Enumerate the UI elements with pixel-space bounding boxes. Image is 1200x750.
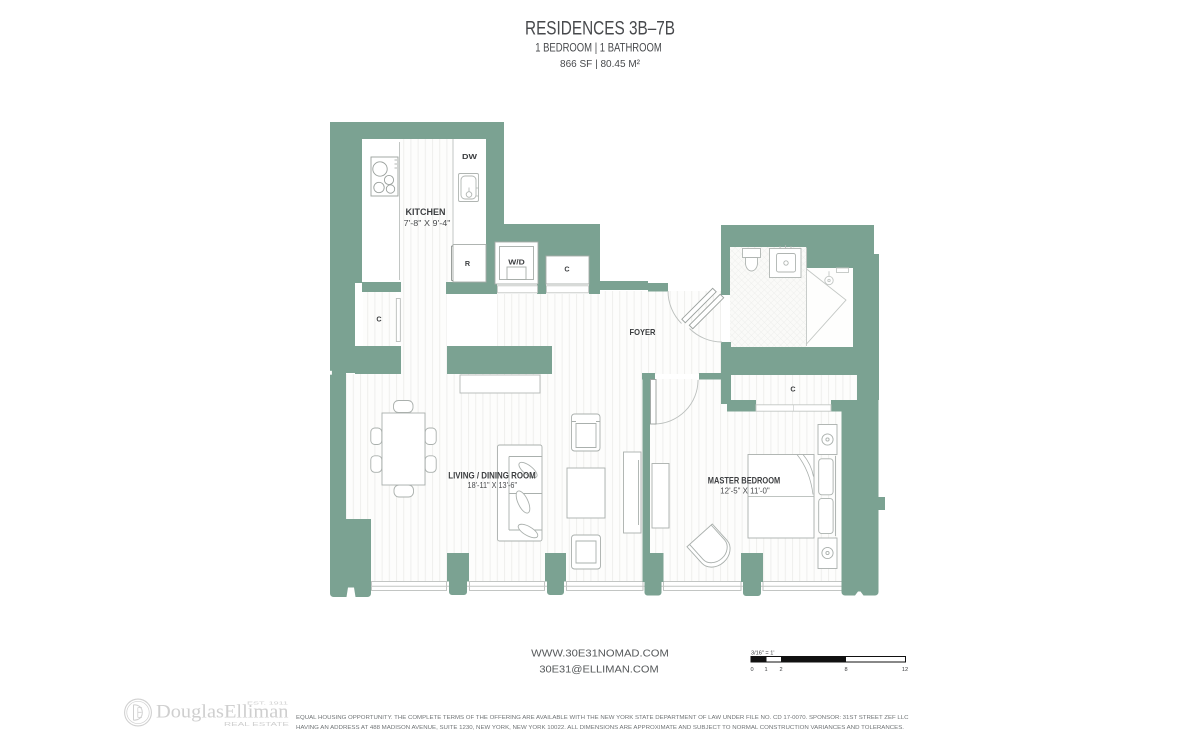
svg-text:WWW.30E31NOMAD.COM: WWW.30E31NOMAD.COM <box>531 648 669 659</box>
svg-text:LIVING / DINING ROOM: LIVING / DINING ROOM <box>448 470 536 481</box>
svg-text:1: 1 <box>764 667 767 673</box>
svg-text:EST. 1911: EST. 1911 <box>247 701 289 706</box>
svg-text:7'-8" X 9'-4": 7'-8" X 9'-4" <box>404 219 451 228</box>
svg-text:C: C <box>564 265 569 274</box>
svg-text:12: 12 <box>902 667 908 673</box>
svg-text:C: C <box>376 315 381 324</box>
svg-text:RESIDENCES 3B–7B: RESIDENCES 3B–7B <box>525 18 675 40</box>
svg-text:30E31@ELLIMAN.COM: 30E31@ELLIMAN.COM <box>539 665 658 676</box>
svg-text:HAVING AN ADDRESS AT 488 MADIS: HAVING AN ADDRESS AT 488 MADISON AVENUE,… <box>296 725 904 731</box>
svg-text:2: 2 <box>779 667 782 673</box>
svg-text:FOYER: FOYER <box>630 328 656 337</box>
svg-text:EQUAL HOUSING OPPORTUNITY. THE: EQUAL HOUSING OPPORTUNITY. THE COMPLETE … <box>296 715 909 721</box>
svg-text:DW: DW <box>462 152 477 161</box>
svg-text:KITCHEN: KITCHEN <box>406 206 446 217</box>
svg-text:MASTER BEDROOM: MASTER BEDROOM <box>708 475 781 486</box>
svg-text:REAL ESTATE: REAL ESTATE <box>224 722 289 728</box>
svg-text:3/16" = 1': 3/16" = 1' <box>751 651 774 657</box>
svg-text:W/D: W/D <box>508 257 525 266</box>
svg-text:0: 0 <box>750 667 753 673</box>
svg-text:8: 8 <box>844 667 847 673</box>
svg-text:18'-11" X 13'-6": 18'-11" X 13'-6" <box>468 481 518 490</box>
svg-text:C: C <box>790 385 795 394</box>
svg-text:R: R <box>465 259 471 268</box>
svg-text:12'-5" X 11'-0": 12'-5" X 11'-0" <box>720 487 770 496</box>
svg-text:866 SF | 80.45 M²: 866 SF | 80.45 M² <box>560 58 640 70</box>
svg-text:1 BEDROOM | 1 BATHROOM: 1 BEDROOM | 1 BATHROOM <box>535 40 662 54</box>
